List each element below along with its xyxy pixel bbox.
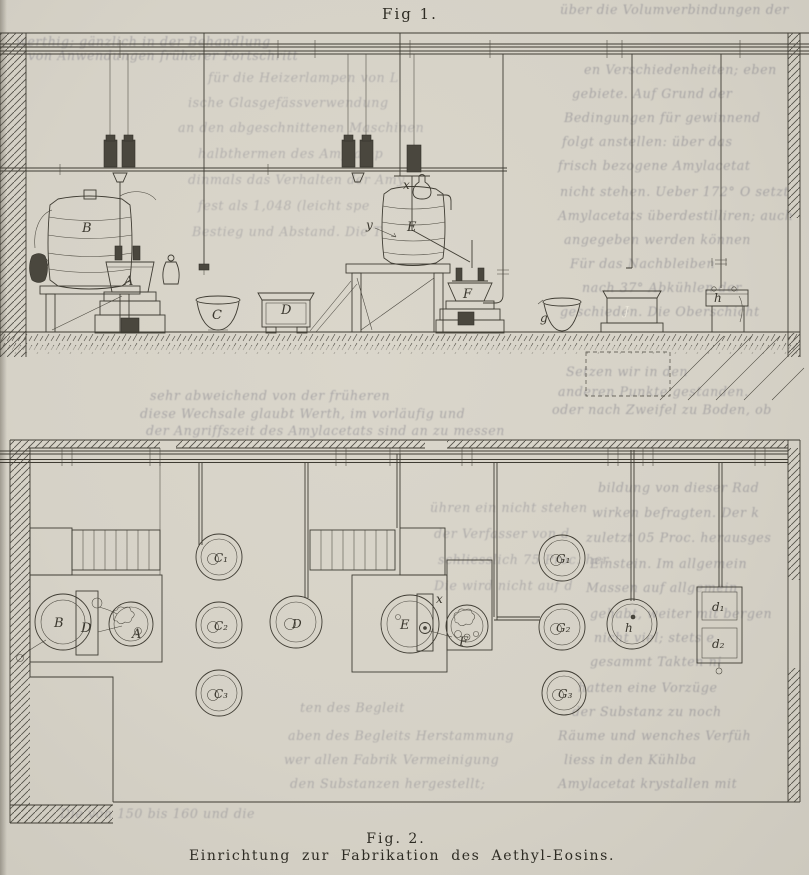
label-vat-g2: G₂: [556, 621, 571, 635]
label-box-d1: d₁: [712, 600, 725, 614]
fig2-labels: B D A C₁ C₂ C₃ D E x F G₁ G₂ G₃ h d₁ d₂: [53, 551, 725, 701]
label-barrel-b: B: [81, 221, 92, 236]
fig1-barrel-e: [310, 175, 451, 333]
label-vat-g3: G₃: [558, 687, 573, 701]
label-kettle-f: F: [462, 287, 473, 302]
label-circle-a: A: [131, 627, 141, 642]
jug: [30, 254, 48, 283]
label-vat-h: h: [625, 621, 633, 635]
label-rect-x: x: [436, 592, 443, 606]
fig1-ground: [0, 332, 804, 400]
fig2-drawing: B D A C₁ C₂ C₃ D E x F G₁ G₂ G₃ h d₁ d₂: [0, 436, 809, 828]
label-vat-g1: G₁: [556, 552, 570, 566]
fig2-pipes: [0, 448, 788, 620]
fig1-furnace-kettle-a: [95, 246, 165, 333]
label-bowl-c: C: [212, 308, 222, 323]
fig2-caption: Einrichtung zur Fabrikation des Aethyl-E…: [189, 848, 615, 864]
label-circle-f: F: [458, 635, 469, 650]
label-barrel-e: E: [406, 220, 417, 235]
label-circle-b: B: [53, 616, 64, 631]
fig2-title: Fig. 2.: [366, 831, 425, 847]
label-vat-c3: C₃: [214, 687, 228, 701]
label-tub-j: J: [621, 304, 630, 318]
label-x: x: [403, 178, 410, 192]
fig1-stirrer-drive-right: [336, 54, 472, 268]
label-rect-d: D: [80, 621, 92, 636]
fig1-labels: B A C D E x y F g J h: [81, 178, 722, 325]
fig2-platform-middle: [352, 528, 492, 672]
label-circle-e: E: [399, 618, 410, 633]
fig1-ceiling-pipes: [0, 33, 809, 175]
fig1-vessel-h: [706, 287, 748, 332]
label-tub-d: D: [280, 303, 292, 318]
fig1-stirrer-drive-left: [98, 54, 150, 246]
label-vessel-h: h: [714, 291, 722, 305]
fig2-stairs-middle: [310, 530, 395, 570]
fig1-drawing: B A C D E x y F g J h: [0, 0, 809, 412]
fig1-tub-j: [601, 291, 663, 332]
label-vat-d: D: [291, 617, 302, 631]
fig2-stairs-left: [72, 530, 160, 570]
label-y: y: [365, 218, 373, 232]
scanned-book-page: werthig; gänzlich in der Behandlung von …: [0, 0, 809, 875]
fig1-barrel-b: [30, 190, 180, 332]
fig2-vats: [196, 534, 742, 716]
label-kettle-a: A: [123, 274, 133, 289]
label-vat-c2: C₂: [214, 619, 228, 633]
label-bowl-g: g: [540, 311, 548, 325]
label-vat-c1: C₁: [214, 551, 228, 565]
label-box-d2: d₂: [712, 637, 725, 651]
